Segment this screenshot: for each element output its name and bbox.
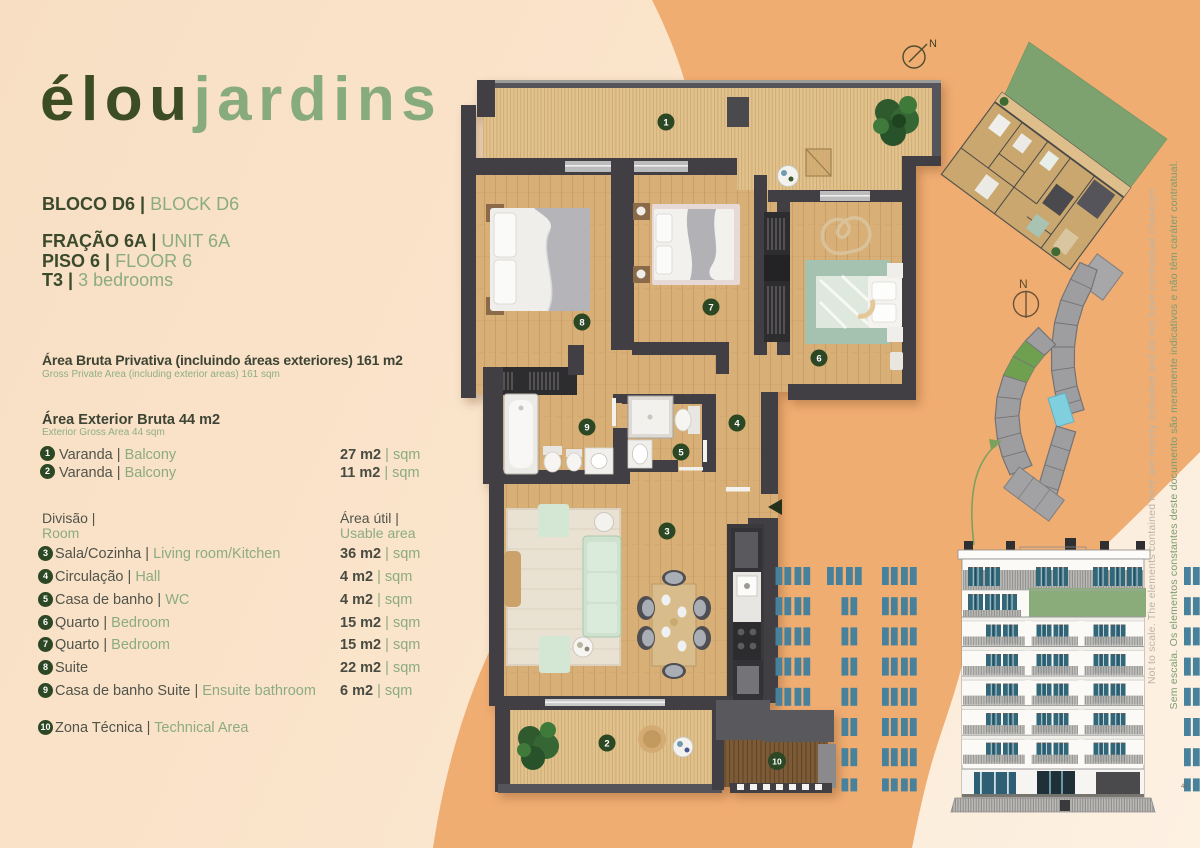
svg-text:N: N — [1019, 277, 1028, 291]
svg-text:1: 1 — [663, 118, 669, 129]
svg-text:9: 9 — [584, 423, 589, 434]
svg-text:3: 3 — [664, 527, 669, 538]
svg-text:10: 10 — [772, 757, 782, 767]
svg-text:2: 2 — [604, 739, 609, 750]
svg-text:N: N — [929, 38, 937, 50]
svg-text:4: 4 — [734, 419, 740, 430]
svg-text:44: 44 — [1181, 784, 1188, 790]
svg-text:5: 5 — [678, 448, 684, 459]
svg-text:7: 7 — [708, 303, 713, 314]
svg-text:6: 6 — [816, 354, 821, 365]
svg-text:8: 8 — [579, 318, 584, 329]
